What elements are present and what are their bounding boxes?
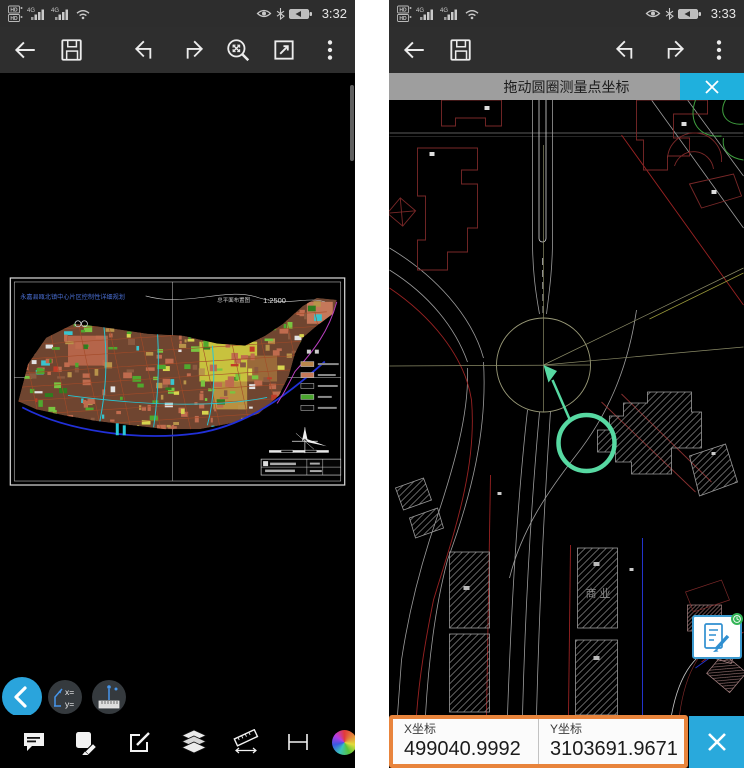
wifi-icon bbox=[75, 8, 91, 20]
chevron-left-icon bbox=[2, 677, 42, 717]
drawing-canvas[interactable]: 永嘉县瓯北镇中心片区控制性详细规划 总平面布置图 1:2500 bbox=[0, 73, 355, 715]
hd-badge-icon: HD HD bbox=[397, 5, 412, 22]
coordinate-readout-panel: X坐标 499040.9992 Y坐标 3103691.9671 bbox=[389, 715, 688, 768]
menu-dots-icon bbox=[706, 37, 732, 63]
undo-button[interactable] bbox=[131, 35, 161, 65]
hint-text: 拖动圆圈测量点坐标 bbox=[504, 77, 630, 97]
x-coordinate-label: X坐标 bbox=[404, 722, 538, 737]
markup-button[interactable] bbox=[72, 728, 100, 756]
menu-button[interactable] bbox=[704, 35, 734, 65]
save-icon bbox=[447, 37, 473, 63]
back-icon bbox=[401, 37, 427, 63]
bluetooth-icon bbox=[276, 7, 285, 20]
menu-button[interactable] bbox=[315, 35, 345, 65]
fullscreen-icon bbox=[271, 37, 297, 63]
color-wheel-icon bbox=[332, 730, 356, 755]
banner-close-button[interactable] bbox=[680, 73, 744, 100]
plan-title: 永嘉县瓯北镇中心片区控制性详细规划 bbox=[20, 293, 125, 301]
undo-icon bbox=[133, 37, 159, 63]
y-coordinate-cell: Y坐标 3103691.9671 bbox=[538, 719, 684, 764]
layers-icon bbox=[181, 729, 207, 755]
eye-comfort-icon bbox=[645, 8, 661, 19]
exit-measure-button[interactable] bbox=[689, 716, 744, 768]
svg-text:4G: 4G bbox=[51, 8, 59, 14]
north-arrow-icon bbox=[292, 427, 327, 453]
measure-arrow-icon bbox=[553, 380, 570, 419]
scale-bar bbox=[269, 450, 329, 452]
measure-marker bbox=[544, 365, 615, 471]
svg-text:HD: HD bbox=[10, 8, 18, 14]
hatched-buildings-mid bbox=[598, 392, 738, 496]
status-bar: HD HD 4G 4G bbox=[0, 0, 355, 27]
area-label: 商业 bbox=[586, 586, 614, 600]
sync-badge-icon bbox=[730, 612, 744, 626]
svg-text:y=: y= bbox=[65, 699, 74, 709]
bluetooth-icon bbox=[665, 7, 674, 20]
coordinate-measure-button[interactable]: x= y= bbox=[48, 680, 82, 714]
top-toolbar bbox=[389, 27, 744, 73]
dimension-icon bbox=[285, 729, 311, 755]
svg-text:HD: HD bbox=[10, 16, 18, 22]
building-outlines-top-right bbox=[637, 100, 742, 208]
building-outlines-top-left bbox=[389, 100, 502, 270]
x-coordinate-value: 499040.9992 bbox=[404, 737, 538, 761]
edit-drawing-button[interactable] bbox=[126, 728, 154, 756]
annotation-edit-button[interactable] bbox=[692, 615, 742, 659]
right-phone-screenshot: HD HD 4G 4G bbox=[389, 0, 744, 768]
x-coordinate-cell: X坐标 499040.9992 bbox=[393, 719, 538, 764]
redo-icon bbox=[179, 37, 205, 63]
measure-tool-button[interactable] bbox=[92, 680, 126, 714]
redo-button[interactable] bbox=[658, 35, 688, 65]
back-button[interactable] bbox=[399, 35, 429, 65]
signal-strength-icon: 4G bbox=[51, 6, 71, 21]
clock: 3:33 bbox=[711, 6, 736, 21]
angled-ruler-icon bbox=[233, 729, 259, 755]
svg-text:HD: HD bbox=[399, 8, 407, 14]
zoom-extents-icon bbox=[225, 37, 251, 63]
signal-strength-icon: 4G bbox=[27, 6, 47, 21]
measure-arrowhead-icon bbox=[544, 365, 558, 383]
back-icon bbox=[12, 37, 38, 63]
greenery-lines bbox=[693, 100, 743, 160]
save-icon bbox=[58, 37, 84, 63]
note-pencil-icon bbox=[73, 729, 99, 755]
battery-icon bbox=[289, 8, 313, 20]
left-phone-screenshot: HD HD 4G 4G bbox=[0, 0, 355, 768]
collapse-panel-button[interactable] bbox=[2, 677, 42, 717]
svg-text:4G: 4G bbox=[416, 8, 424, 14]
plan-scale-label: 1:2500 bbox=[263, 296, 286, 305]
color-palette-button[interactable] bbox=[330, 728, 355, 756]
redo-icon bbox=[660, 37, 686, 63]
hd-badge-icon: HD HD bbox=[8, 5, 23, 22]
measure-length-button[interactable] bbox=[232, 728, 260, 756]
hatched-buildings-bottom bbox=[396, 478, 618, 715]
canvas-scrollbar[interactable] bbox=[350, 85, 354, 161]
bottom-toolbar bbox=[0, 715, 355, 768]
undo-icon bbox=[614, 37, 640, 63]
menu-dots-icon bbox=[317, 37, 343, 63]
top-toolbar bbox=[0, 27, 355, 73]
speech-bubble-icon bbox=[21, 729, 47, 755]
title-block bbox=[261, 459, 341, 475]
plan-view-label: 总平面布置图 bbox=[217, 296, 250, 304]
save-button[interactable] bbox=[445, 35, 475, 65]
site-plan-thumbnail[interactable]: 永嘉县瓯北镇中心片区控制性详细规划 总平面布置图 1:2500 bbox=[8, 276, 347, 487]
svg-text:x=: x= bbox=[65, 687, 74, 697]
svg-text:4G: 4G bbox=[27, 8, 35, 14]
signal-strength-icon: 4G bbox=[440, 6, 460, 21]
svg-text:4G: 4G bbox=[440, 8, 448, 14]
status-bar: HD HD 4G 4G bbox=[389, 0, 744, 27]
edit-square-icon bbox=[127, 729, 153, 755]
y-coordinate-value: 3103691.9671 bbox=[550, 737, 684, 761]
cad-measure-canvas[interactable]: 商业 bbox=[389, 100, 744, 715]
comment-button[interactable] bbox=[20, 728, 48, 756]
eye-comfort-icon bbox=[256, 8, 272, 19]
y-coordinate-label: Y坐标 bbox=[550, 722, 684, 737]
signal-strength-icon: 4G bbox=[416, 6, 436, 21]
zoom-extents-button[interactable] bbox=[223, 35, 253, 65]
back-button[interactable] bbox=[10, 35, 40, 65]
measure-hint-banner: 拖动圆圈测量点坐标 bbox=[389, 73, 744, 100]
svg-text:HD: HD bbox=[399, 16, 407, 22]
save-button[interactable] bbox=[56, 35, 86, 65]
clock: 3:32 bbox=[322, 6, 347, 21]
layers-button[interactable] bbox=[180, 728, 208, 756]
battery-icon bbox=[678, 8, 702, 20]
ruler-point-icon bbox=[92, 680, 126, 714]
wifi-icon bbox=[464, 8, 480, 20]
fullscreen-button[interactable] bbox=[269, 35, 299, 65]
redo-button[interactable] bbox=[177, 35, 207, 65]
close-icon bbox=[703, 78, 721, 96]
dimension-button[interactable] bbox=[284, 728, 312, 756]
undo-button[interactable] bbox=[612, 35, 642, 65]
close-icon bbox=[704, 729, 730, 755]
